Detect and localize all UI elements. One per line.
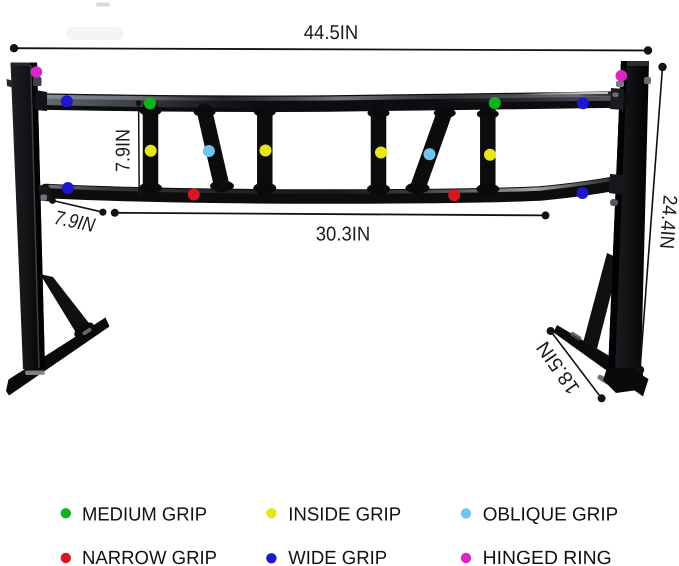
svg-text:MEDIUM GRIP: MEDIUM GRIP [82,504,207,525]
svg-text:WIDE GRIP: WIDE GRIP [288,548,387,566]
svg-text:44.5IN: 44.5IN [304,22,359,44]
svg-text:30.3IN: 30.3IN [316,223,371,245]
svg-text:INSIDE GRIP: INSIDE GRIP [288,504,401,525]
svg-text:NARROW GRIP: NARROW GRIP [82,548,217,566]
svg-text:OBLIQUE GRIP: OBLIQUE GRIP [483,504,619,525]
svg-text:HINGED RING: HINGED RING [483,548,612,566]
svg-text:7.9IN: 7.9IN [113,129,135,172]
svg-text:24.4IN: 24.4IN [655,194,679,249]
